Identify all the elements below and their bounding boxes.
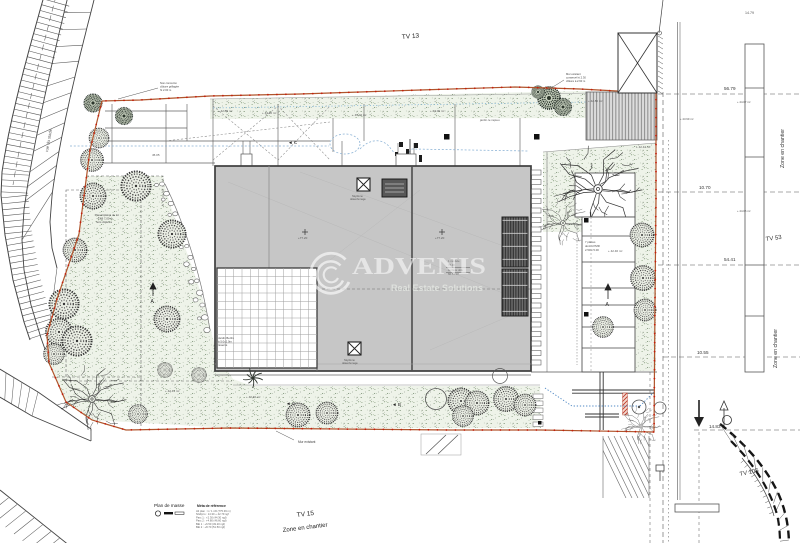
svg-text:Plan de masse: Plan de masse	[154, 503, 185, 508]
svg-text:Bât 2 : +8.70 (51.50 ngf: Bât 2 : +8.70 (51.50 ngf)	[196, 525, 225, 529]
svg-text:hors clôtures: hors clôtures	[96, 220, 113, 224]
svg-text:réservé: réservé	[218, 343, 228, 347]
svg-text:+ 43.05 m²: + 43.05 m²	[262, 111, 276, 115]
svg-text:+ 44.05 m²: + 44.05 m²	[737, 209, 751, 213]
svg-text:Méta de référence: Méta de référence	[197, 504, 226, 508]
svg-text:+ 42.86 m²: + 42.86 m²	[588, 99, 602, 103]
svg-text:56.79: 56.79	[724, 86, 736, 91]
svg-text:10.55: 10.55	[697, 350, 709, 355]
svg-text:Mur existant: Mur existant	[298, 440, 315, 444]
svg-text:+77.20: +77.20	[298, 236, 308, 240]
svg-text:Mur existant: Mur existant	[566, 72, 581, 76]
svg-text:conservé ht 2.30: conservé ht 2.30	[566, 76, 586, 80]
svg-text:+ 42.40 m²: + 42.40 m²	[246, 395, 260, 399]
svg-text:+ 42.40 m²: + 42.40 m²	[445, 389, 459, 393]
svg-text:jardin le rapieu: jardin le rapieu	[479, 118, 500, 122]
svg-text:10.70: 10.70	[699, 185, 711, 190]
svg-text:clôture grillagée: clôture grillagée	[160, 85, 179, 89]
svg-text:Zone en chantier: Zone en chantier	[773, 329, 779, 368]
svg-text:+ 43.99 m²: + 43.99 m²	[680, 117, 694, 121]
svg-text:◄ C: ◄ C	[288, 140, 298, 145]
svg-text:Non concerné: Non concerné	[160, 81, 177, 85]
svg-text:14.79: 14.79	[745, 11, 754, 15]
svg-text:+ 43.06 m²: + 43.06 m²	[430, 109, 444, 113]
svg-text:54.41: 54.41	[724, 257, 736, 262]
svg-text:+ 43.04 m²: + 43.04 m²	[352, 113, 366, 117]
svg-text:ADVENIS: ADVENIS	[352, 254, 486, 280]
svg-text:14.83: 14.83	[709, 424, 721, 429]
svg-text:clôture à 2.60 m: clôture à 2.60 m	[566, 79, 586, 83]
svg-text:+ 42.44 m²: + 42.44 m²	[636, 145, 650, 149]
svg-text:+ 44.07 m²: + 44.07 m²	[737, 100, 751, 104]
svg-text:+ 42.85 m²: + 42.85 m²	[218, 109, 232, 113]
svg-text:Real Estate Solutions: Real Estate Solutions	[391, 283, 483, 294]
svg-text:Zone en chantier: Zone en chantier	[780, 129, 786, 168]
svg-text:+77.20: +77.20	[435, 236, 445, 240]
svg-text:◄ C: ◄ C	[286, 401, 296, 406]
svg-text:+ 42.43 m²: + 42.43 m²	[165, 389, 179, 393]
svg-text:45.05: 45.05	[152, 153, 160, 157]
svg-text:ht 2.00 m: ht 2.00 m	[160, 88, 172, 92]
svg-text:désenfumage: désenfumage	[350, 197, 366, 201]
svg-text:désenfumage: désenfumage	[342, 361, 358, 365]
svg-text:+ 42.46 m²: + 42.46 m²	[608, 249, 622, 253]
svg-text:◄ B: ◄ B	[392, 402, 401, 407]
svg-text:2.50 x 5.00: 2.50 x 5.00	[585, 248, 599, 252]
